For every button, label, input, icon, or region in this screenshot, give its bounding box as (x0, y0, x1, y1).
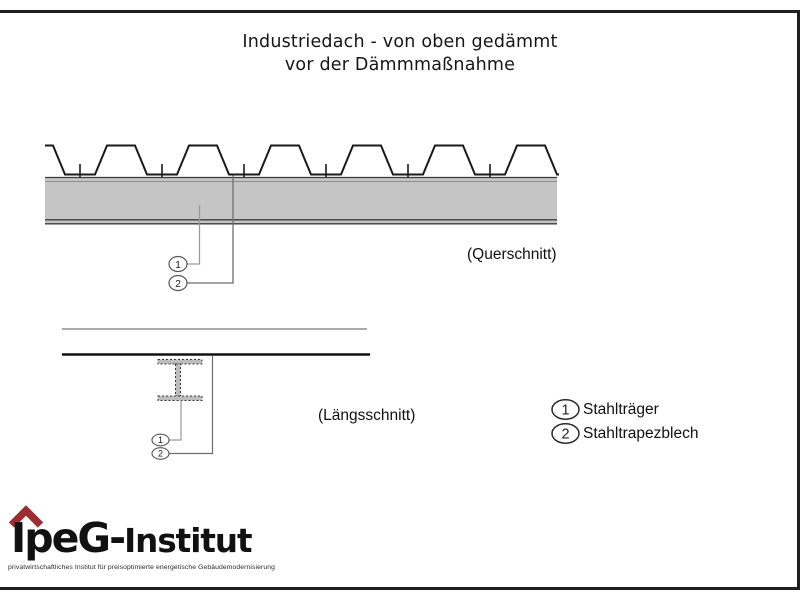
slide-page: Industriedach - von oben gedämmt vor der… (0, 0, 800, 600)
i-beam-top-flange (158, 360, 202, 365)
callout-1-long: 1 (152, 434, 169, 446)
i-beam-bottom-flange (158, 396, 202, 401)
legend-number-1: 1 (561, 403, 569, 419)
callout-2-long: 2 (152, 448, 169, 460)
legend-number-2: 2 (561, 427, 569, 443)
diagram-canvas: 1 2 1 (0, 0, 800, 600)
logo-wordmark: IpeG-Institut (11, 514, 252, 562)
callout-2-cross: 2 (169, 276, 187, 291)
callout-1-cross: 1 (169, 257, 187, 272)
callout-number: 1 (175, 259, 181, 271)
logo-brand-rest: Institut (124, 522, 251, 560)
i-beam-web (176, 364, 181, 396)
callout-number: 2 (175, 278, 181, 290)
beam-body (45, 178, 557, 225)
long-section-caption: (Längsschnitt) (318, 407, 415, 425)
legend-label-stahltrapezblech: Stahltrapezblech (583, 425, 698, 443)
trapezoidal-sheet-profile (45, 146, 559, 175)
i-beam-profile (158, 360, 202, 401)
legend-label-stahltraeger: Stahlträger (583, 401, 659, 419)
legend-markers: 1 2 (552, 400, 579, 443)
long-section-drawing: 1 2 (62, 329, 370, 459)
logo-brand-main: IpeG- (11, 514, 124, 562)
logo-tagline: privatwirtschaftliches Institut für prei… (8, 564, 275, 571)
cross-section-caption: (Querschnitt) (467, 246, 557, 264)
leader-line-1-long (170, 401, 182, 441)
cross-section-drawing: 1 2 (45, 146, 559, 291)
steel-beam-cross-section (45, 178, 557, 225)
callout-number: 1 (158, 435, 163, 445)
callout-number: 2 (158, 449, 163, 459)
